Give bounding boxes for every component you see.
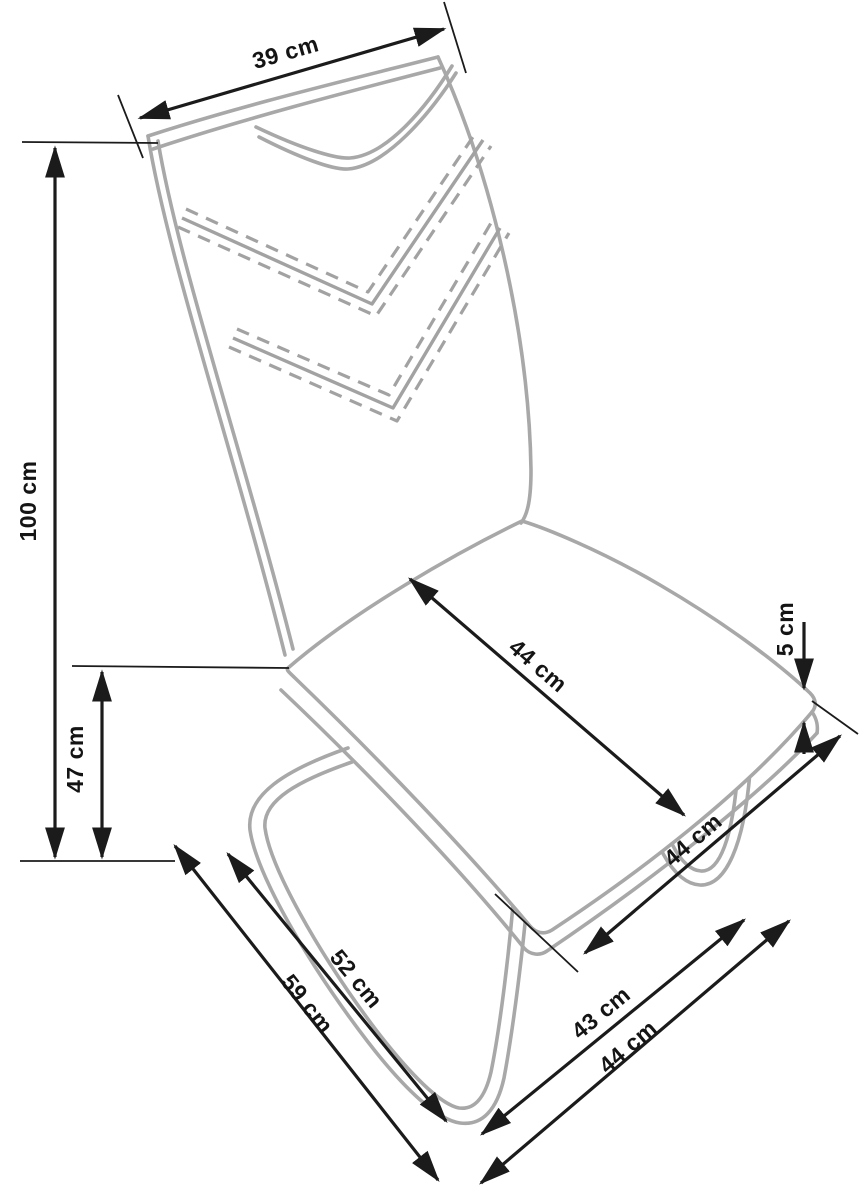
handle-cutout-lower	[259, 73, 456, 169]
extension-line	[118, 95, 143, 158]
diagram-canvas: 39 cm 100 cm 47 cm 44 cm 5 cm 4	[0, 0, 868, 1200]
extension-line	[72, 666, 289, 668]
backrest-top-edge-inner	[153, 68, 440, 149]
dim-label-total-height: 100 cm	[15, 460, 41, 541]
dimension-arrow	[228, 854, 446, 1121]
dimension-seat-height: 47 cm	[62, 672, 102, 857]
dimension-base-front-rail: 52 cm	[228, 854, 446, 1121]
dim-label-seat-height: 47 cm	[62, 725, 88, 793]
backrest-left-edge-outer	[148, 136, 285, 655]
backrest-top-edge-outer	[148, 57, 438, 136]
chevron-solid-line	[182, 140, 483, 304]
dimension-base-right-depth: 44 cm	[481, 921, 789, 1183]
stitch-chevron-upper	[178, 134, 491, 316]
dimension-base-left-depth: 59 cm	[175, 846, 438, 1180]
stitch-chevron-lower	[229, 223, 509, 421]
chevron-dashed-line	[178, 146, 491, 316]
chevron-solid-line	[233, 228, 500, 408]
seat-corner-right-edge	[812, 712, 817, 733]
chair-dimension-diagram: 39 cm 100 cm 47 cm 44 cm 5 cm 4	[0, 0, 868, 1200]
backrest-left-edge-inner	[158, 141, 293, 649]
seat	[281, 521, 817, 954]
dimension-backrest-top-width: 39 cm	[140, 29, 444, 118]
dimension-total-height: 100 cm	[15, 148, 55, 857]
extension-line	[22, 142, 158, 143]
dim-label-seat-edge-thickness: 5 cm	[772, 602, 798, 656]
seat-top-surface	[287, 521, 815, 933]
extension-line	[444, 2, 466, 73]
